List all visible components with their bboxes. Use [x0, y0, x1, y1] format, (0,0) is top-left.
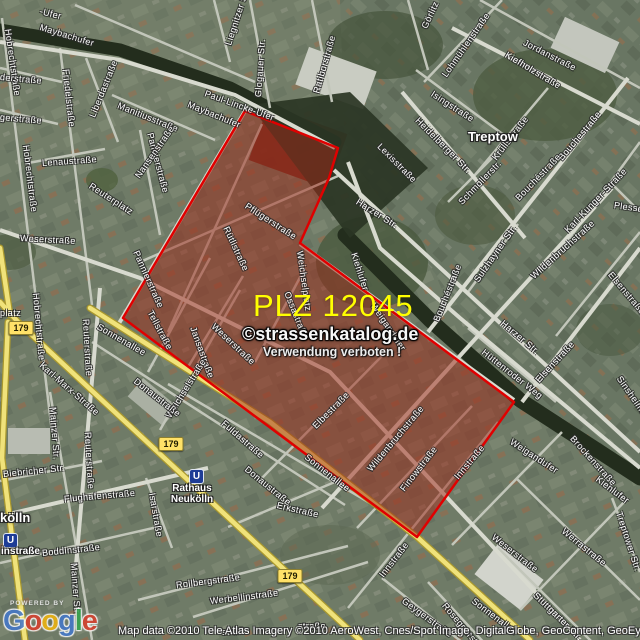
map-canvas[interactable]: -UferMaybachuferHobrechtstraßederstraßeg… [0, 0, 640, 640]
plz-code-label: PLZ 12045 [253, 288, 414, 324]
google-logo[interactable]: Google [3, 605, 97, 638]
google-logo-letter: o [25, 605, 42, 637]
google-logo-letter: o [41, 605, 58, 637]
google-logo-letter: e [82, 605, 97, 637]
map-attribution: Map data ©2010 Tele Atlas Imagery ©2010 … [118, 625, 640, 637]
google-logo-letter: G [3, 605, 25, 637]
google-logo-letter: g [58, 605, 75, 637]
watermark-source: ©strassenkatalog.de [242, 324, 418, 345]
google-logo-letter: l [75, 605, 82, 637]
watermark-warning: Verwendung verboten ! [263, 345, 401, 359]
